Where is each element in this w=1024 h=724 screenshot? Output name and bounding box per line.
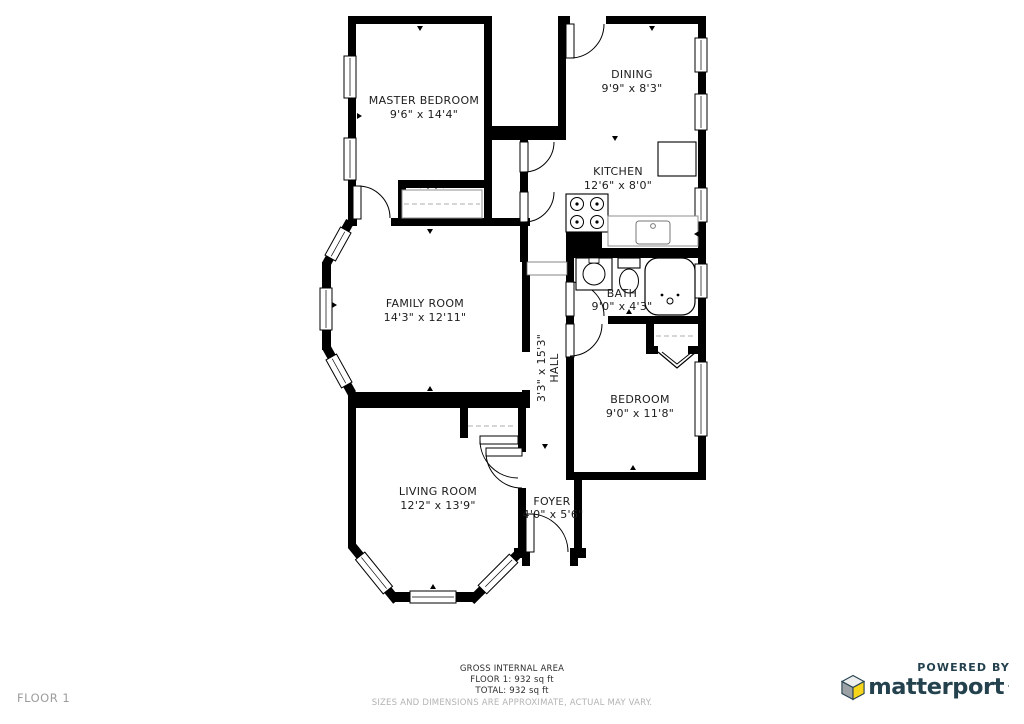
bathtub-icon (645, 258, 695, 315)
room-label-dining: DINING 9'9" x 8'3" (602, 68, 663, 95)
kitchen-counter (608, 216, 698, 246)
window (344, 56, 356, 98)
room-label-living-room: LIVING ROOM 12'2" x 13'9" (399, 485, 477, 512)
svg-text:BATH: BATH (607, 287, 637, 300)
room-label-hall: HALL 3'3" x 15'3" (535, 334, 561, 402)
window (695, 362, 707, 436)
svg-text:4'0" x 5'6": 4'0" x 5'6" (523, 508, 584, 521)
room-label-bedroom: BEDROOM 9'0" x 11'8" (606, 393, 674, 420)
door-swing (566, 24, 604, 58)
window (695, 94, 707, 130)
svg-text:9'0" x 11'8": 9'0" x 11'8" (606, 407, 674, 420)
door-swing (566, 324, 602, 357)
svg-text:KITCHEN: KITCHEN (593, 165, 643, 178)
matterport-cube-icon (841, 674, 865, 701)
door-swing (486, 448, 522, 488)
door-swing (480, 436, 518, 478)
window (355, 552, 392, 594)
svg-text:9'9" x 8'3": 9'9" x 8'3" (602, 82, 663, 95)
svg-text:MASTER BEDROOM: MASTER BEDROOM (369, 94, 479, 107)
svg-text:LIVING ROOM: LIVING ROOM (399, 485, 477, 498)
floor-plan-page: MASTER BEDROOM 9'6" x 14'4" DINING 9'9" … (0, 0, 1024, 724)
svg-text:12'6" x 8'0": 12'6" x 8'0" (584, 179, 652, 192)
matterport-branding: POWERED BY matterport · (841, 661, 1010, 701)
bifold-door-icon (658, 352, 696, 368)
window (410, 591, 456, 603)
kitchen-sink-icon (636, 221, 670, 244)
svg-text:14'3" x 12'11": 14'3" x 12'11" (384, 311, 467, 324)
floor-label: FLOOR 1 (17, 691, 70, 705)
svg-text:9'0" x 4'3": 9'0" x 4'3" (592, 300, 653, 313)
window (320, 288, 332, 330)
bifold-door-icon (662, 352, 692, 364)
door-swing (520, 192, 554, 222)
window (344, 138, 356, 180)
window (326, 354, 352, 388)
stove-icon (566, 194, 608, 232)
matterport-wordmark: matterport (868, 676, 1004, 699)
dining-cabinet (658, 142, 696, 176)
svg-text:FAMILY ROOM: FAMILY ROOM (386, 297, 464, 310)
door-swing (520, 142, 554, 172)
door-swing (353, 186, 390, 219)
svg-text:3'3" x 15'3": 3'3" x 15'3" (535, 334, 548, 402)
svg-text:BEDROOM: BEDROOM (610, 393, 670, 406)
svg-text:9'6" x 14'4": 9'6" x 14'4" (390, 108, 458, 121)
trademark-mark: · (1007, 683, 1010, 692)
svg-text:12'2" x 13'9": 12'2" x 13'9" (400, 499, 476, 512)
svg-text:DINING: DINING (611, 68, 653, 81)
window (695, 38, 707, 72)
window (478, 554, 518, 594)
floor-plan-drawing: MASTER BEDROOM 9'6" x 14'4" DINING 9'9" … (0, 0, 1024, 724)
svg-text:FOYER: FOYER (533, 495, 570, 508)
svg-text:HALL: HALL (548, 353, 561, 383)
window (325, 227, 351, 261)
room-label-bath: BATH 9'0" x 4'3" (592, 287, 653, 313)
hall-cased-opening (527, 262, 567, 275)
room-label-master-bedroom: MASTER BEDROOM 9'6" x 14'4" (369, 94, 479, 121)
powered-by-text: POWERED BY (841, 661, 1010, 674)
room-label-family-room: FAMILY ROOM 14'3" x 12'11" (384, 297, 467, 324)
bathroom-sink-icon (576, 258, 612, 290)
window (695, 264, 707, 298)
room-label-kitchen: KITCHEN 12'6" x 8'0" (584, 165, 652, 192)
